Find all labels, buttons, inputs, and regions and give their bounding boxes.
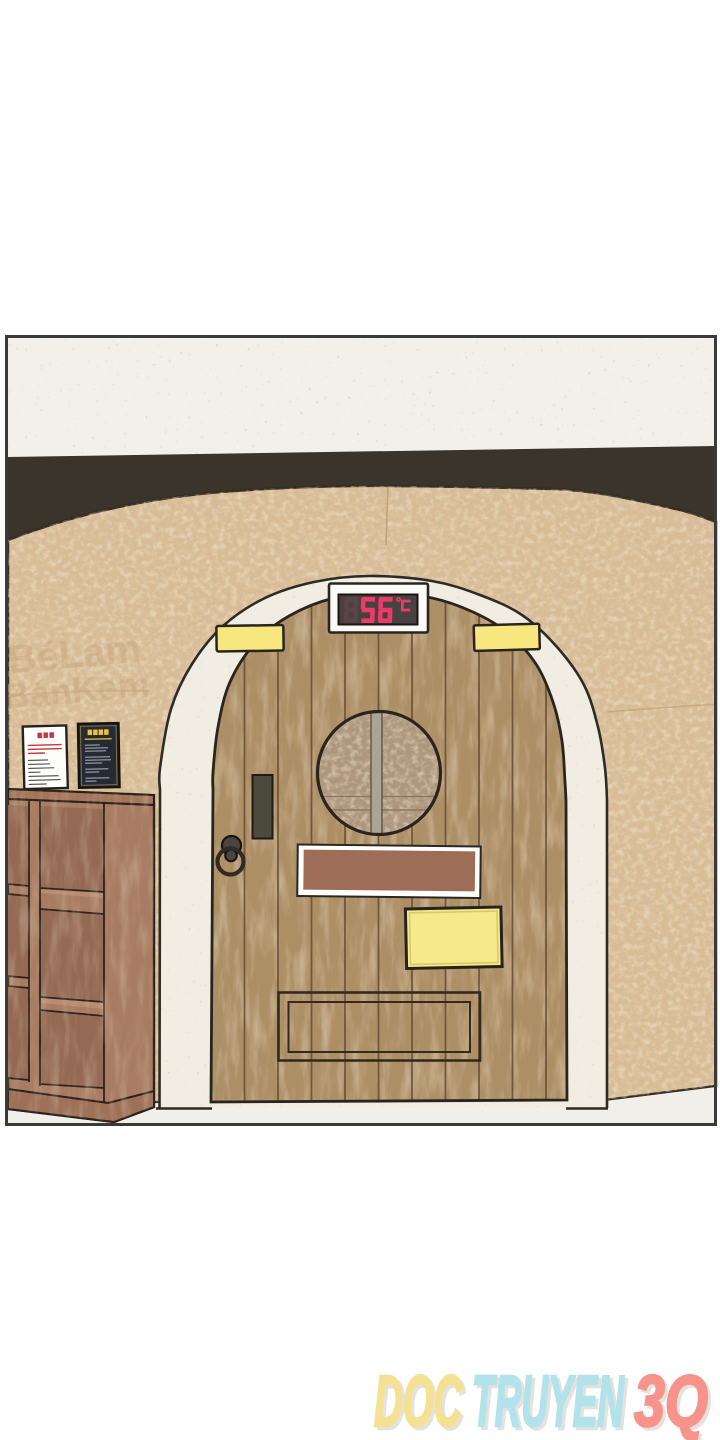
svg-text:TRUYEN: TRUYEN [472,1362,625,1440]
svg-text:3Q: 3Q [634,1362,708,1440]
svg-text:DOC: DOC [374,1362,463,1440]
